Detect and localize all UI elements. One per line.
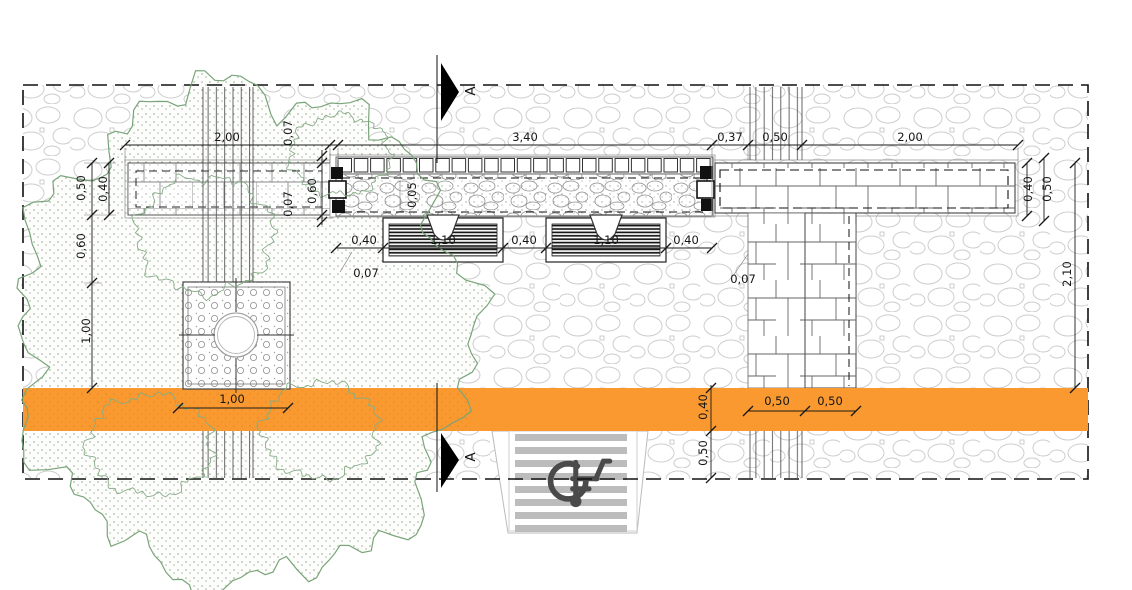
bench-right bbox=[546, 215, 666, 262]
paver-row bbox=[338, 159, 710, 173]
tree-trunk-circle bbox=[214, 313, 258, 357]
planting-bed bbox=[329, 155, 715, 217]
tactile-ramp bbox=[492, 431, 648, 533]
plan-canvas: 2,00 0,07 3,40 0,37 0,50 2,00 0,50 0,40 … bbox=[0, 0, 1132, 590]
orange-band bbox=[23, 388, 1088, 431]
plan-drawing bbox=[0, 0, 1132, 590]
bench-left bbox=[383, 215, 503, 262]
tree-planter bbox=[179, 278, 294, 393]
